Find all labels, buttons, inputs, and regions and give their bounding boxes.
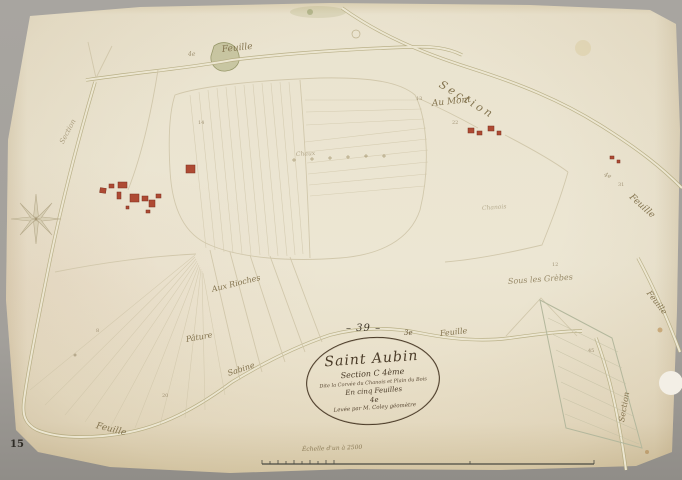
sheet-number: – 39 –	[346, 324, 381, 334]
parcel-number: 8	[96, 328, 99, 334]
parcel-boundaries	[55, 42, 577, 380]
buildings	[100, 126, 620, 213]
parcel-number: 13	[416, 96, 422, 102]
scale-bar	[262, 460, 594, 464]
parcel-number: 20	[162, 393, 168, 399]
label-fe-top: 4e	[188, 52, 195, 58]
page-number: 15	[10, 440, 24, 450]
map-title: Saint Aubin	[324, 348, 419, 371]
scanned-map-page: Feuille 4e Section Au Mont 4e Chaux Chan…	[0, 0, 682, 480]
parcel-number: 45	[588, 348, 594, 354]
parcel-number: 12	[552, 262, 558, 268]
adjacent-sheet-mark: 3e	[404, 330, 413, 337]
parcel-number: 22	[452, 120, 458, 126]
label-chaux: Chaux	[296, 151, 316, 158]
sheet-ordinal-line: 4e	[370, 396, 379, 405]
hatched-field-bottom-right	[540, 300, 642, 448]
parcel-number: 31	[618, 182, 624, 188]
parcel-number: 14	[198, 120, 204, 126]
